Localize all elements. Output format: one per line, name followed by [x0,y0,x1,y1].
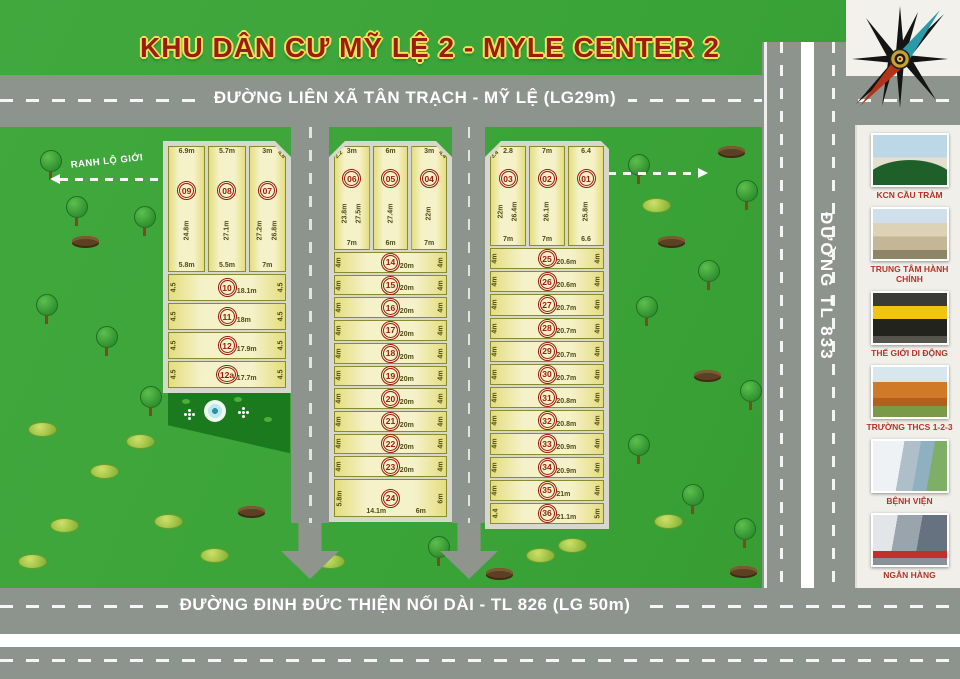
tree-icon [740,380,762,402]
internal-road [452,127,485,523]
mobile-store-photo-icon [871,291,949,345]
plot-side-dim: 4m [491,434,500,453]
landmark-label: NGÂN HÀNG [863,570,956,580]
plot-36: 4.43621.1m5m [490,503,604,524]
government-center-photo-icon [871,207,949,261]
shrub-icon [234,397,242,402]
plot-number: 32 [540,413,555,428]
plot-side-dim: 4m [491,272,500,291]
plot-side-dim: 4m [437,253,446,272]
bush-icon [154,514,183,529]
plot-side-dim-text: 4m [595,323,602,333]
plot-side-dim-text: 4m [438,280,445,290]
plot-block-left: 6.9m0924.8m5.8m5.7m0827.1m5.5m3m4.80727.… [163,141,291,393]
plot-side-dim: 4.5 [169,304,178,329]
plot-number: 17 [383,323,398,338]
plot-number: 19 [383,368,398,383]
plot-19: 4m1920m4m [334,366,447,387]
plot-side-dim-text: 5.8m [336,490,343,506]
plot-width-dim: 20m [400,399,414,406]
plot-width-dim: 20m [400,376,414,383]
tree-icon [734,518,756,540]
plot-side-dim: 4.5 [169,333,178,358]
road-tl833-label: ĐƯỜNG TL 833 [816,212,836,361]
plot-side-dim: 25.8m [582,208,591,215]
plot-width-dim: 20.9m [556,444,576,451]
plot-side-dim: 4m [491,342,500,361]
boundary-dashes [60,178,164,181]
plot-side-dim: 24.8m [182,227,191,234]
plot-side-dim: 4m [437,367,446,386]
plot-side-dim: 4.4 [491,504,500,523]
plot-number: 23 [383,459,398,474]
plot-27: 4m2720.7m4m [490,294,604,315]
plot-number: 21 [383,414,398,429]
plot-side-dim: 4m [491,249,500,268]
plot-width-dim: 20.7m [556,305,576,312]
plot-row-center: 3320.9m [500,434,594,453]
plot-side-dim: 4m [335,276,344,295]
plot-number: 09 [179,183,194,198]
plot-side-dims: 27.2m26.8m [250,200,285,261]
plot-side-dim-text: 4.5 [277,312,284,322]
plot-row-center: 3020.7m [500,365,594,384]
plot-side-dim: 4m [335,457,344,476]
plot-30: 4m3020.7m4m [490,364,604,385]
landmark-label: BỆNH VIỆN [863,496,956,506]
mound-icon [694,370,721,380]
plot-12a: 4.512a17.7m4.5 [168,361,286,388]
plot-width-dim: 14.1m [366,508,386,515]
plot-side-dim-text: 26.8m [271,221,278,241]
plot-number: 12 [220,338,235,353]
plot-side-dim: 22m [496,208,505,215]
plot-01: 6.40125.8m6.6 [568,146,604,246]
plot-side-dim: 27.1m [222,227,231,234]
plot-side-dim-text: 4m [492,439,499,449]
plot-side-dim-text: 4m [492,346,499,356]
plot-width-dim: 20.6m [556,282,576,289]
bush-icon [18,554,47,569]
plot-bottom-dim: 6m [374,239,408,249]
plot-side-dim-text: 4m [492,254,499,264]
bush-icon [90,464,119,479]
plot-number: 11 [220,309,235,324]
plot-row-center: 1820m [344,344,437,363]
compass-rose-icon [848,2,952,112]
boundary-line-left: RANH LỘ GIỚI [50,156,164,188]
plot-number: 05 [383,171,398,186]
plot-top-dim: 5.7m [209,147,244,157]
bush-icon [200,548,229,563]
plot-07: 3m4.80727.2m26.8m7m [249,146,286,272]
plot-side-dim: 4m [491,411,500,430]
plot-side-dim: 4.5 [276,333,285,358]
plot-11: 4.51118m4.5 [168,303,286,330]
plot-number: 36 [540,506,555,521]
plot-side-dim: 4m [594,365,603,384]
plot-top-dim: 6.4 [569,147,603,157]
plot-side-dim-text: 4m [438,371,445,381]
plot-number: 34 [540,460,555,475]
plot-26: 4m2620.6m4m [490,271,604,292]
plot-row-center: 1720m [344,321,437,340]
plot-side-dim: 4m [335,435,344,454]
plot-22: 4m2220m4m [334,434,447,455]
plot-side-dim-text: 27.1m [223,221,230,241]
boundary-line-right [608,168,708,180]
tree-icon [698,260,720,282]
arrow-right-icon [698,168,708,178]
plot-side-dim: 4m [437,321,446,340]
plot-row-center: 2320m [344,457,437,476]
plot-side-dim-text: 5m [595,508,602,518]
plot-side-dim-text: 4m [595,462,602,472]
landmark-card: THẾ GIỚI DI ĐỘNG [863,291,956,358]
tree-icon [636,296,658,318]
plot-side-dim: 4m [594,295,603,314]
plot-side-dim: 4m [335,412,344,431]
plot-width-dim: 20.7m [556,328,576,335]
plot-bottom-dim: 5.8m [169,261,204,271]
plot-side-dim: 4m [437,435,446,454]
plot-side-dim-text: 27.4m [387,204,394,224]
plot-number: 33 [540,436,555,451]
plot-side-dim: 4m [437,344,446,363]
plot-10: 4.51018.1m4.5 [168,274,286,301]
landmark-card: TRUNG TÂM HÀNH CHÍNH [863,207,956,284]
plot-top-dim: 7m [530,147,564,157]
plot-side-dim: 4.5 [169,362,178,387]
plot-bottom-dim: 7m [491,235,525,245]
plot-row-center: 1217.9m [178,333,276,358]
plot-side-dim: 27.5m [354,210,363,217]
plot-side-dim: 4m [594,481,603,500]
plot-28: 4m2820.7m4m [490,318,604,339]
plot-side-dim: 4m [437,276,446,295]
plot-row-center: 2220m [344,435,437,454]
plot-width-dim: 20m [400,422,414,429]
plot-width-dim: 20m [400,285,414,292]
plot-side-dim: 4m [335,253,344,272]
road-bottom: ĐƯỜNG ĐINH ĐỨC THIỆN NỐI DÀI - TL 826 (L… [0,588,960,679]
bush-icon [50,518,79,533]
plot-side-dim-text: 4m [438,394,445,404]
plot-21: 4m2120m4m [334,411,447,432]
plot-side-dim: 4m [335,298,344,317]
plot-side-dims: 23.8m27.5m [335,188,369,239]
landmark-card: BỆNH VIỆN [863,439,956,506]
plot-side-dims: 22m [412,188,446,239]
plot-side-dim-text: 4m [438,439,445,449]
tree-icon [134,206,156,228]
plot-side-dim: 4m [335,367,344,386]
plot-width-dim: 20m [400,331,414,338]
plot-side-dim: 4m [437,412,446,431]
road-divider-stripe [801,42,814,588]
plot-side-dims: 27.4m [374,188,408,239]
plot-20: 4m2020m4m [334,388,447,409]
plot-number: 29 [540,344,555,359]
tree-icon [36,294,58,316]
plot-side-dim: 4m [335,321,344,340]
landmark-card: NGÂN HÀNG [863,513,956,580]
plot-number: 08 [219,183,234,198]
bush-icon [126,434,155,449]
road-tl833: ĐƯỜNG TL 833 [762,42,855,588]
plot-width-dim: 20.7m [556,375,576,382]
plot-number: 30 [540,367,555,382]
plot-side-dim-text: 4m [492,369,499,379]
plot-side-dim-text: 4.5 [170,312,177,322]
landmark-label: TRUNG TÂM HÀNH CHÍNH [863,264,956,284]
plot-side-dim-text: 6m [438,493,445,503]
plot-bottom-dim: 7m [530,235,564,245]
plot-side-dim-text: 4.5 [170,370,177,380]
plot-side-dim-text: 4m [336,416,343,426]
flower-icon [242,411,245,414]
plot-row-center: 3621.1m [500,504,594,523]
plot-bottom-dim: 7m [335,239,369,249]
plot-side-dim-text: 4.5 [170,283,177,293]
plot-number: 27 [540,297,555,312]
plot-width-dim: 21m [556,491,570,498]
plot-number: 07 [260,183,275,198]
plot-side-dims: 25.8m [569,188,603,235]
plot-14: 4m1420m4m [334,252,447,273]
plot-width-dim: 20m [400,354,414,361]
plot-number: 02 [540,171,555,186]
plot-side-dim: 27.4m [386,210,395,217]
plot-35: 4m3521m4m [490,480,604,501]
plot-row-center: 1018.1m [178,275,276,300]
plot-width-dim: 18m [237,317,251,324]
plot-side-dim: 4m [437,298,446,317]
row-plots: 4m2520.6m4m4m2620.6m4m4m2720.7m4m4m2820.… [490,248,604,524]
plot-side-dim: 4m [437,389,446,408]
plot-side-dim: 4m [491,458,500,477]
tree-icon [66,196,88,218]
plot-number: 01 [579,171,594,186]
plot-side-dims: 24.8m [169,200,204,261]
plot-width-dim: 20.8m [556,421,576,428]
plot-side-dim-text: 4m [595,346,602,356]
plot-block-right: 2.83.40322m26.4m7m7m0226.1m7m6.40125.8m6… [485,141,609,529]
plot-row-center: 1420m [344,253,437,272]
bush-icon [654,514,683,529]
plot-row-center: 2414.1m6m [344,480,437,516]
plot-number: 03 [501,171,516,186]
plot-side-dim-text: 4m [595,416,602,426]
plot-side-dim: 23.8m [340,210,349,217]
plot-row-center: 2920.7m [500,342,594,361]
plot-side-dim-text: 4m [492,393,499,403]
plot-row-center: 2620.6m [500,272,594,291]
landmark-label: THẾ GIỚI DI ĐỘNG [863,348,956,358]
plot-width-dim: 20m [400,467,414,474]
plot-side-dim: 5.8m [335,480,344,516]
plot-side-dim-text: 4m [492,462,499,472]
plot-number: 04 [422,171,437,186]
plot-side-dim-text: 4m [336,303,343,313]
plot-side-dim: 4m [594,388,603,407]
plot-side-dim: 4m [491,481,500,500]
plot-side-dim-text: 4m [336,325,343,335]
plot-corner-dim: 4.8 [276,150,286,160]
plot-side-dim-text: 4.5 [277,370,284,380]
plot-side-dims: 22m26.4m [491,188,525,235]
plot-side-dim: 4m [335,344,344,363]
plot-width-dim: 17.9m [237,346,257,353]
plot-side-dim-text: 23.8m [341,204,348,224]
plot-32: 4m3220.8m4m [490,410,604,431]
road-center-dashes [309,127,312,523]
plot-side-dim: 4m [594,272,603,291]
vertical-plots: 3m2.20623.8m27.5m7m6m0527.4m6m3m4.40422m… [334,146,447,250]
plot-width-dim: 20m [400,263,414,270]
plot-side-dim: 4m [335,389,344,408]
plot-34: 4m3420.9m4m [490,457,604,478]
plot-side-dim: 4m [594,458,603,477]
plot-width-dim: 18.1m [237,288,257,295]
row-plots: 4.51018.1m4.54.51118m4.54.51217.9m4.54.5… [168,274,286,388]
plot-side-dim-text: 4m [438,348,445,358]
plot-row-center: 12a17.7m [178,362,276,387]
plot-row-center: 2120m [344,412,437,431]
tree-icon [140,386,162,408]
plot-width-dim: 20m [400,308,414,315]
plot-side-dim-text: 4m [336,257,343,267]
plot-side-dim-text: 4m [595,393,602,403]
plot-width-dim: 20m [400,444,414,451]
landmark-card: KCN CẦU TRÀM [863,133,956,200]
plot-side-dim-text: 4m [438,325,445,335]
plot-number: 24 [383,491,398,506]
plot-side-dim-text: 4m [438,462,445,472]
plot-05: 6m0527.4m6m [373,146,409,250]
plot-side-dim-text: 4m [438,416,445,426]
plot-number: 18 [383,346,398,361]
plot-side-dim-text: 4.5 [170,341,177,351]
plot-block-middle: 3m2.20623.8m27.5m7m6m0527.4m6m3m4.40422m… [329,141,452,522]
plot-row-center: 2020m [344,389,437,408]
landmark-list: KCN CẦU TRÀMTRUNG TÂM HÀNH CHÍNHTHẾ GIỚI… [863,133,956,580]
plot-side-dim-text: 4.5 [277,283,284,293]
plot-18: 4m1820m4m [334,343,447,364]
plot-row-center: 2720.7m [500,295,594,314]
shrub-icon [264,417,272,422]
plot-side-dim: 4m [594,249,603,268]
plot-side-dim: 6m [437,480,446,516]
plot-side-dim-text: 4m [595,485,602,495]
plot-03: 2.83.40322m26.4m7m [490,146,526,246]
plot-bottom-dim: 5.5m [209,261,244,271]
plot-side-dim-text: 4.5 [277,341,284,351]
plot-side-dim-text: 4m [492,300,499,310]
plot-corner-dim: 4.4 [437,150,447,160]
plot-side-dim-text: 26.4m [512,202,519,222]
hospital-photo-icon [871,439,949,493]
plot-31: 4m3120.8m4m [490,387,604,408]
plot-side-dim: 26.4m [511,208,520,215]
plot-number: 26 [540,274,555,289]
plot-number: 16 [383,300,398,315]
plot-top-dim: 6.9m [169,147,204,157]
shrub-icon [182,399,190,404]
internal-road [291,127,329,523]
plot-top-dim: 6m [374,147,408,157]
road-center-dashes [780,42,783,588]
plot-33: 4m3320.9m4m [490,433,604,454]
bush-icon [642,198,671,213]
plot-number: 15 [383,278,398,293]
plot-side-dim-text: 27.2m [256,221,263,241]
plot-row-center: 1520m [344,276,437,295]
road-center-dashes [0,659,960,662]
bush-icon [526,548,555,563]
plot-side-dim-text: 24.8m [183,221,190,241]
plot-side-dim: 4.5 [276,275,285,300]
mound-icon [72,236,99,246]
plot-side-dim: 4m [594,411,603,430]
plot-15: 4m1520m4m [334,275,447,296]
plot-bottom-dim: 7m [250,261,285,271]
plot-side-dim-text: 4m [492,485,499,495]
plot-number: 14 [383,255,398,270]
plot-row-center: 1920m [344,367,437,386]
plot-12: 4.51217.9m4.5 [168,332,286,359]
road-top-label: ĐƯỜNG LIÊN XÃ TÂN TRẠCH - MỸ LỆ (LG29m) [0,88,830,108]
plot-side-dim-text: 4m [336,462,343,472]
road-divider-stripe [0,634,960,647]
plot-number: 22 [383,436,398,451]
arrow-left-icon [50,174,60,184]
school-photo-icon [871,365,949,419]
plot-side-dim: 4.5 [169,275,178,300]
plot-side-dim-text: 4m [595,277,602,287]
mound-icon [718,146,745,156]
plot-side-dim: 4m [491,365,500,384]
plot-side-dim: 4m [491,295,500,314]
plot-side-dim-text: 4m [595,439,602,449]
page-title: KHU DÂN CƯ MỸ LỆ 2 - MYLE CENTER 2 [0,32,860,64]
plot-side-dim-text: 4m [336,371,343,381]
plot-width-dim: 17.7m [237,375,257,382]
tree-icon [628,434,650,456]
boundary-dashes [608,172,698,175]
bank-photo-icon [871,513,949,567]
plot-side-dim-text: 26.1m [544,202,551,222]
flower-icon [188,413,191,416]
road-bottom-label: ĐƯỜNG ĐINH ĐỨC THIỆN NỐI DÀI - TL 826 (L… [0,595,810,615]
bush-icon [28,422,57,437]
plot-side-dim-text: 27.5m [355,204,362,224]
mound-icon [658,236,685,246]
mound-icon [730,566,757,576]
plot-side-dim-text: 25.8m [583,202,590,222]
plot-06: 3m2.20623.8m27.5m7m [334,146,370,250]
plot-04: 3m4.40422m7m [411,146,447,250]
plot-row-center: 1620m [344,298,437,317]
mound-icon [238,506,265,516]
plot-side-dim: 26.8m [270,227,279,234]
plot-side-dim-text: 4.4 [492,509,499,519]
tree-icon [682,484,704,506]
plot-bottom-dim: 7m [412,239,446,249]
vertical-plots: 6.9m0924.8m5.8m5.7m0827.1m5.5m3m4.80727.… [168,146,286,272]
plot-side-dim: 27.2m [255,227,264,234]
plot-number: 31 [540,390,555,405]
